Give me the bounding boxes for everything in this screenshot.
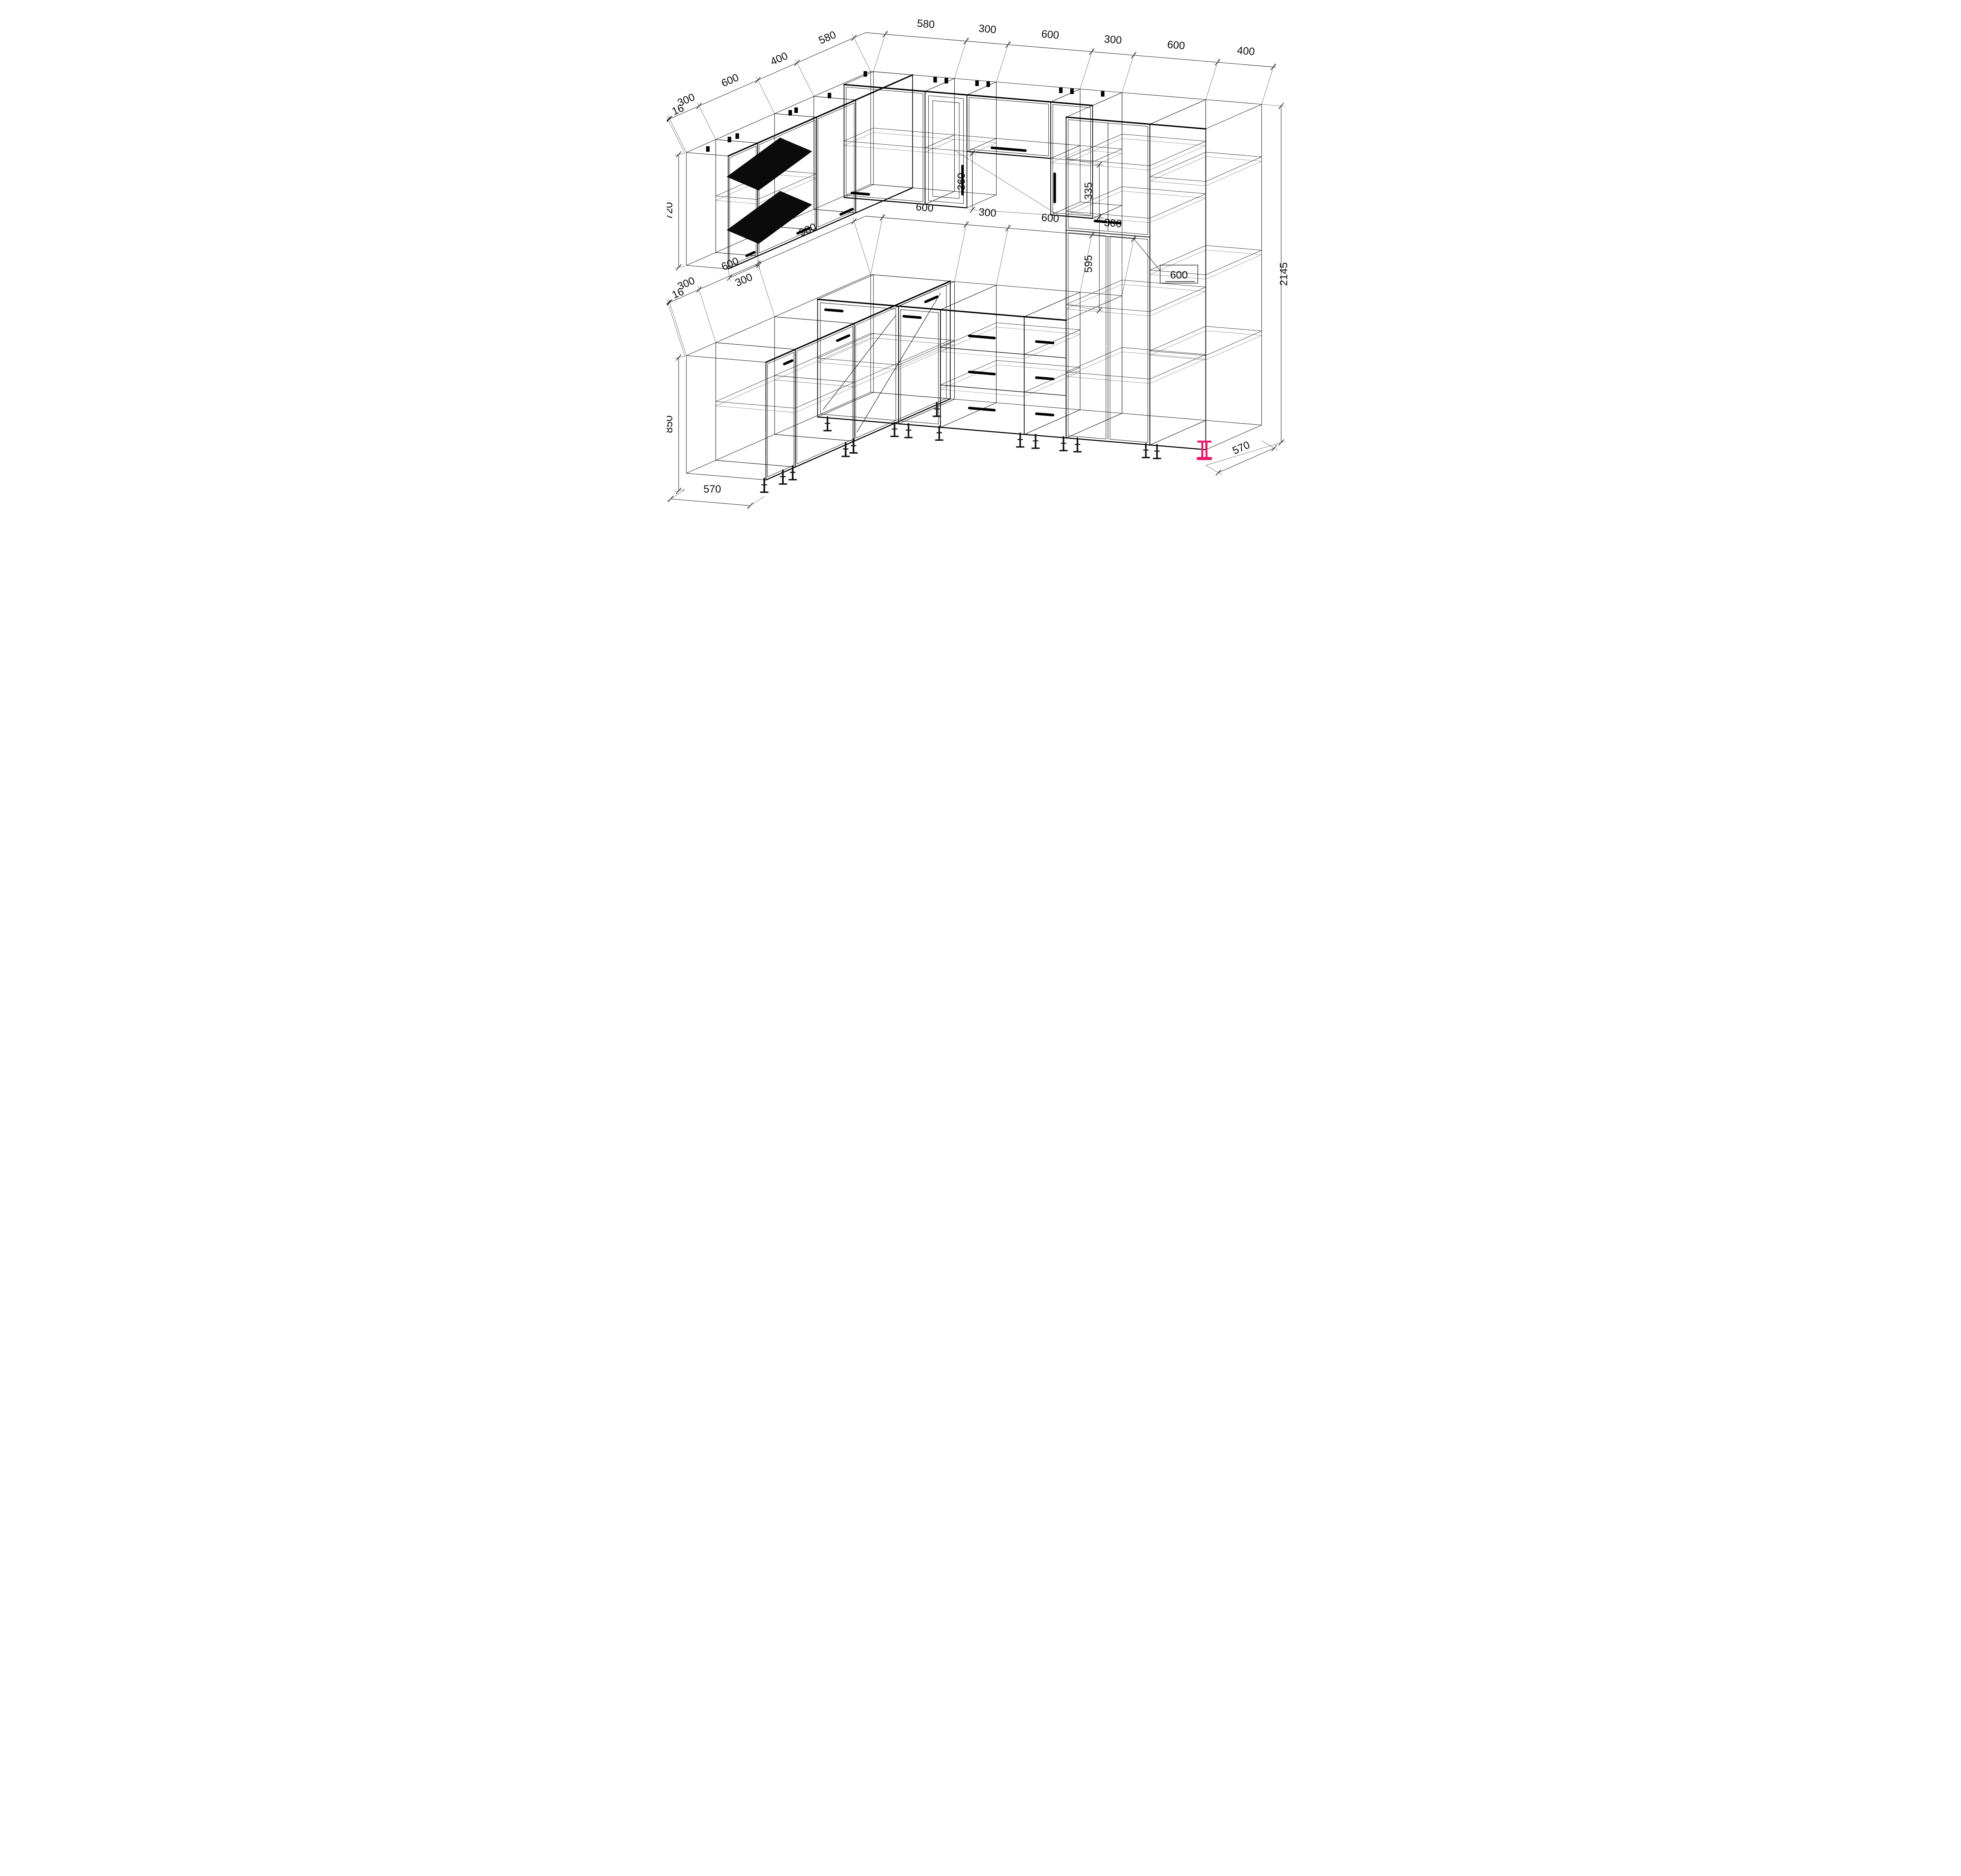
dim-wall-cabinet-height: 720: [667, 202, 675, 220]
dim-tall-top-gap: 335: [1082, 182, 1094, 200]
dim-top-back-4: 300: [1104, 33, 1122, 46]
dimension-labels: 580 300 600 300 600 400 580 400 600 300 …: [667, 17, 1290, 495]
drawing-canvas: 580 300 600 300 600 400 580 400 600 300 …: [667, 0, 1294, 512]
dim-tall-width-callout: 600: [1170, 269, 1188, 281]
dim-top-left-600: 600: [720, 71, 740, 89]
dim-total-height: 2145: [1278, 262, 1290, 286]
kitchen-3d-wireframe: 580 300 600 300 600 400 580 400 600 300 …: [667, 0, 1294, 512]
dim-base-left-600: 600: [720, 255, 740, 273]
dim-top-back-1: 580: [917, 17, 935, 31]
wireframe-geometry: [667, 31, 1285, 509]
dim-top-back-6: 400: [1237, 44, 1255, 58]
dim-base-height: 850: [667, 415, 675, 433]
dim-right-depth: 570: [1231, 439, 1252, 457]
dim-top-left-400: 400: [769, 50, 789, 68]
dim-hood-gap: 360: [955, 173, 967, 190]
dim-top-back-5: 600: [1167, 38, 1185, 52]
dim-wall-cab-bottom-width: 300: [733, 271, 754, 289]
dim-base-back-2: 300: [978, 206, 997, 219]
dim-top-left-580: 580: [817, 29, 838, 47]
dim-left-depth: 570: [703, 483, 721, 495]
dim-base-back-3: 600: [1041, 211, 1059, 225]
dim-base-back-1: 600: [915, 201, 934, 214]
dim-top-back-2: 300: [978, 22, 997, 36]
dim-tall-mid-gap: 595: [1082, 255, 1094, 273]
dim-base-back-4: 300: [1104, 216, 1122, 230]
dim-top-back-3: 600: [1041, 28, 1059, 41]
